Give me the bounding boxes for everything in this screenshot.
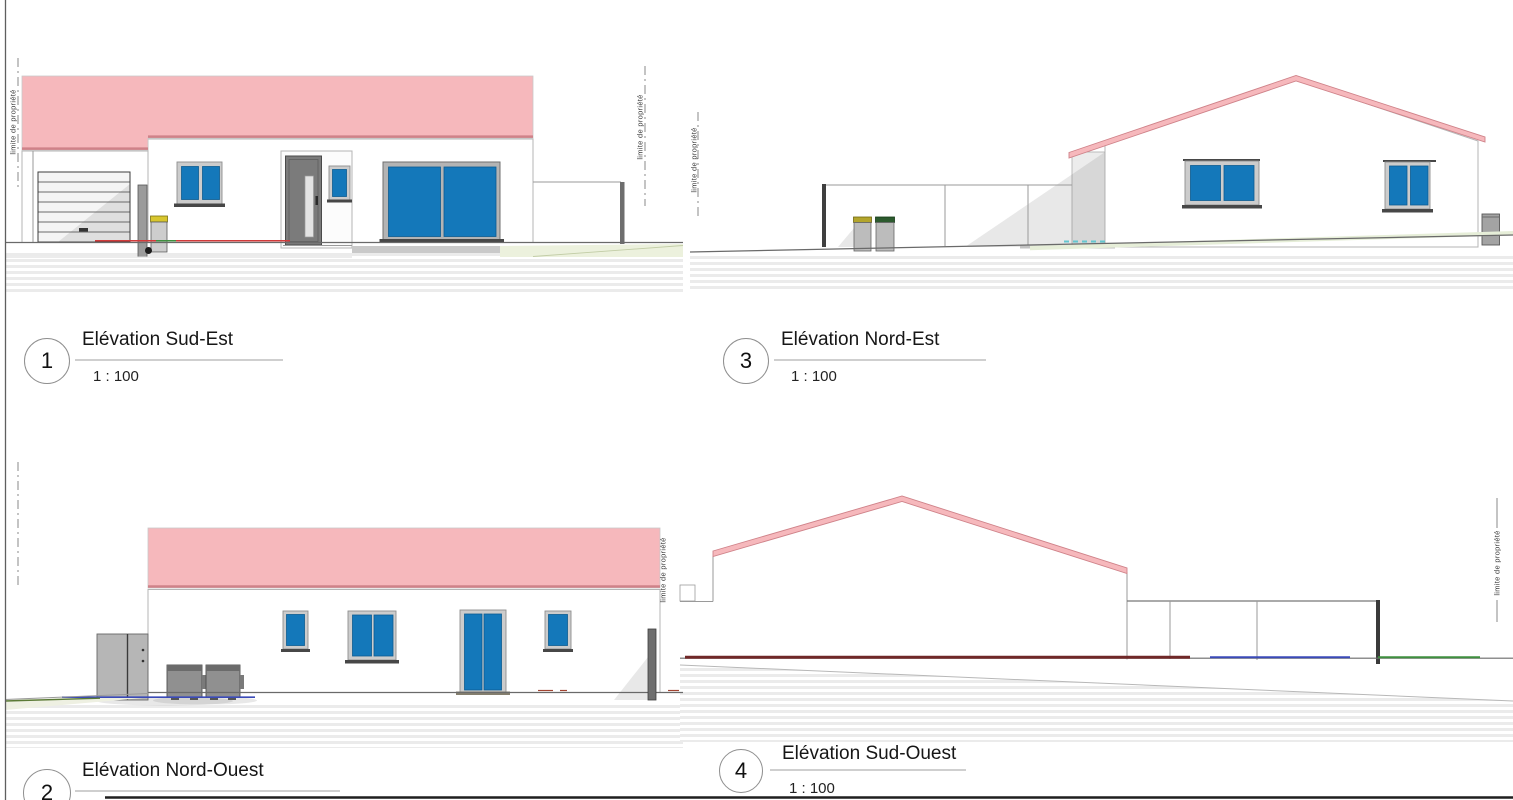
window [1382, 161, 1436, 213]
property-limit-label: limite de propriété [659, 537, 668, 602]
window [281, 611, 310, 652]
view-title: Elévation Nord-Ouest [82, 760, 264, 782]
ac-unit [1482, 214, 1500, 245]
view-number-circle: 3 [723, 338, 769, 384]
title-underline [75, 790, 340, 792]
sliding-window [380, 162, 505, 243]
roof [713, 496, 1127, 574]
door-handle [316, 196, 319, 205]
view-number: 3 [740, 348, 752, 374]
utility-cabinet [97, 634, 148, 700]
window [174, 162, 225, 207]
view-title: Elévation Sud-Est [82, 329, 233, 351]
fence-post [648, 629, 656, 700]
trash-bin [854, 217, 872, 251]
elevation-nord-est-drawing [690, 76, 1513, 253]
grass-band [500, 244, 683, 257]
view-number: 2 [41, 780, 53, 800]
view-title: Elévation Sud-Ouest [782, 743, 956, 765]
view-number-circle: 1 [24, 338, 70, 384]
elevation-sheet: limite de propriété limite de propriété … [0, 0, 1513, 800]
elevation-sud-ouest-drawing [680, 496, 1513, 701]
trash-bin [876, 217, 895, 251]
heat-pump-unit [206, 665, 244, 700]
title-underline [774, 359, 986, 361]
fence-post [620, 182, 625, 244]
neighbor-step [680, 585, 695, 601]
window [1182, 160, 1262, 209]
title-underline [770, 769, 966, 771]
heat-pump-unit [167, 665, 206, 700]
elevation-linework [0, 0, 1513, 800]
fence-post [822, 184, 826, 247]
view-number: 1 [41, 348, 53, 374]
wall-shadow [965, 152, 1105, 247]
window [327, 166, 352, 203]
window [543, 611, 573, 652]
view-scale: 1 : 100 [93, 368, 139, 385]
property-limit-label: limite de propriété [9, 89, 18, 154]
fence-post [1376, 600, 1380, 664]
french-door [456, 610, 510, 695]
fence-post [138, 185, 147, 257]
property-limit-label: limite de propriété [636, 94, 645, 159]
property-limit-label: limite de propriété [1493, 530, 1502, 595]
roof [148, 528, 660, 588]
property-limit-label: limite de propriété [690, 127, 699, 192]
elevation-sud-est-drawing [5, 58, 683, 257]
view-scale: 1 : 100 [789, 780, 835, 797]
view-number: 4 [735, 758, 747, 784]
window [345, 611, 399, 664]
view-number-circle: 4 [719, 749, 763, 793]
view-title: Elévation Nord-Est [781, 329, 939, 351]
view-scale: 1 : 100 [791, 368, 837, 385]
elevation-nord-ouest-drawing [5, 462, 683, 710]
title-underline [75, 359, 283, 361]
